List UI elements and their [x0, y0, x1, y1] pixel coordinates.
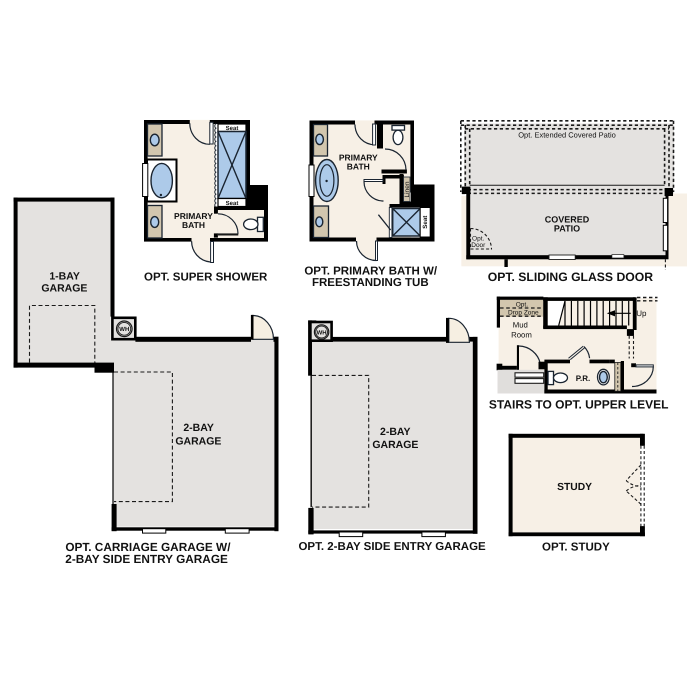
svg-text:Room: Room [511, 330, 532, 339]
svg-text:WH: WH [317, 329, 327, 336]
svg-text:2-BAY: 2-BAY [183, 422, 214, 434]
svg-text:OPT. PRIMARY BATH W/: OPT. PRIMARY BATH W/ [304, 266, 437, 278]
svg-text:GARAGE: GARAGE [41, 283, 87, 295]
svg-text:WH: WH [119, 326, 129, 333]
svg-text:Up: Up [636, 309, 647, 318]
svg-text:STAIRS TO OPT. UPPER LEVEL: STAIRS TO OPT. UPPER LEVEL [489, 397, 669, 411]
svg-text:1-BAY: 1-BAY [49, 270, 80, 282]
svg-text:Mud: Mud [513, 320, 528, 329]
svg-text:OPT. STUDY: OPT. STUDY [542, 542, 610, 554]
svg-text:OPT. SLIDING GLASS DOOR: OPT. SLIDING GLASS DOOR [488, 270, 653, 284]
svg-text:2-BAY SIDE ENTRY GARAGE: 2-BAY SIDE ENTRY GARAGE [65, 552, 228, 566]
svg-text:Linen: Linen [404, 181, 411, 197]
svg-text:2-BAY: 2-BAY [380, 426, 411, 438]
svg-text:GARAGE: GARAGE [372, 439, 418, 451]
svg-text:OPT. SUPER SHOWER: OPT. SUPER SHOWER [144, 271, 268, 283]
svg-text:Seat: Seat [422, 216, 429, 229]
svg-text:GARAGE: GARAGE [175, 435, 221, 447]
svg-text:Opt.: Opt. [516, 301, 528, 308]
svg-text:Opt. Extended Covered Patio: Opt. Extended Covered Patio [518, 131, 616, 140]
svg-text:P.R.: P.R. [576, 374, 591, 383]
svg-text:OPT. 2-BAY SIDE ENTRY GARAGE: OPT. 2-BAY SIDE ENTRY GARAGE [298, 541, 486, 553]
svg-text:FREESTANDING TUB: FREESTANDING TUB [312, 277, 429, 289]
svg-text:PATIO: PATIO [554, 224, 580, 234]
svg-text:STUDY: STUDY [557, 482, 592, 493]
svg-text:Drop Zone: Drop Zone [508, 310, 539, 317]
svg-text:BATH: BATH [182, 220, 205, 230]
svg-text:BATH: BATH [347, 162, 370, 172]
svg-text:Seat: Seat [226, 200, 239, 207]
svg-text:Door: Door [471, 242, 486, 249]
